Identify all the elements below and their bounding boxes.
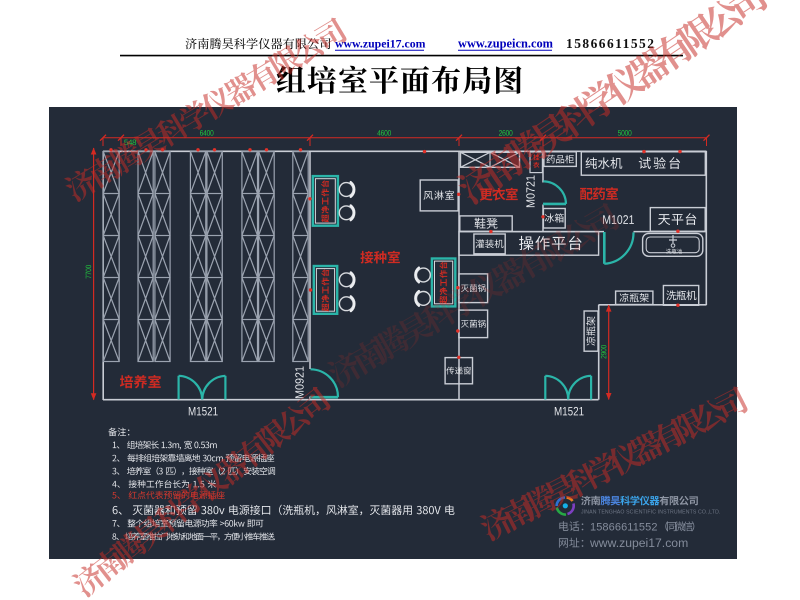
svg-text:www.zupeicn.com: www.zupeicn.com: [458, 37, 554, 51]
svg-text:15866611552: 15866611552: [566, 36, 655, 51]
svg-text:www.zupei17.com: www.zupei17.com: [589, 536, 688, 550]
svg-text:JINAN TENGHAO SCIENTIFIC INSTR: JINAN TENGHAO SCIENTIFIC INSTRUMENTS CO.…: [581, 509, 721, 515]
svg-text:www.zupei17.com: www.zupei17.com: [335, 37, 426, 51]
svg-text:15866611552: 15866611552: [590, 521, 658, 533]
